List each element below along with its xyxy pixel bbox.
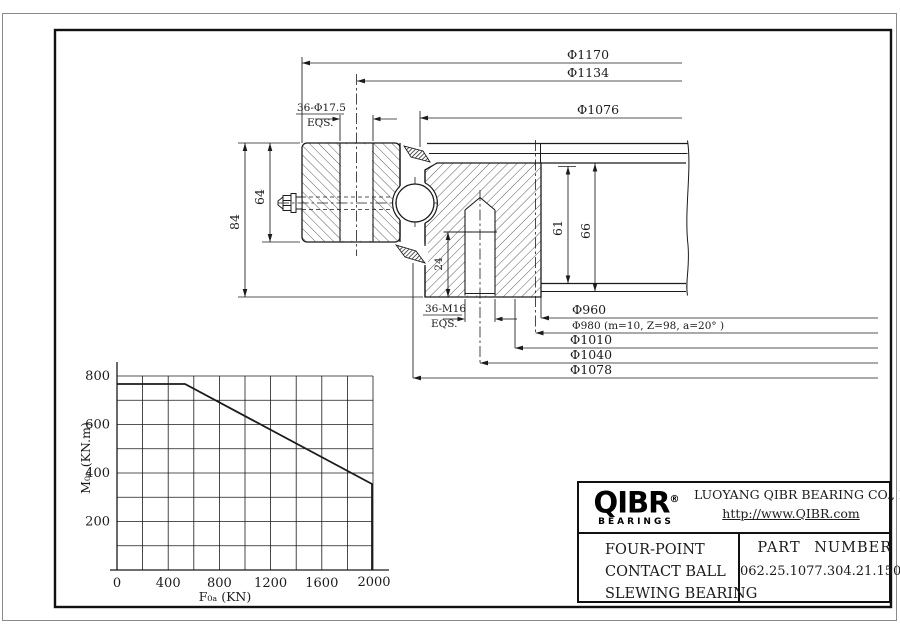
xtick-400: 400 xyxy=(156,576,181,591)
dim-thread-depth: 24 xyxy=(433,257,445,271)
title-block-header-row: QIBR® BEARINGS LUOYANG QIBR BEARING CO.,… xyxy=(579,483,889,534)
part-number-cell: PART NUMBER 062.25.1077.304.21.1504 xyxy=(740,534,900,601)
drawing-sheet: Φ1170 Φ1134 Φ1076 36-Φ17.5 EQS. 36-M16 E… xyxy=(0,0,900,636)
company-info: LUOYANG QIBR BEARING CO., LTD http://www… xyxy=(694,487,888,521)
dim-bolt-circle-outer: Φ1134 xyxy=(567,65,609,80)
ytick-800: 800 xyxy=(85,369,110,384)
xtick-2000: 2000 xyxy=(357,575,390,590)
dim-inner-bolt-holes: 36-M16 xyxy=(425,303,466,315)
dim-od: Φ1170 xyxy=(567,47,609,62)
dim-gear-pitch: Φ980 (m=10, Z=98, a=20° ) xyxy=(572,320,724,332)
dim-gear-tip: Φ960 xyxy=(572,302,606,317)
xtick-1600: 1600 xyxy=(305,576,338,591)
product-line-2: CONTACT BALL xyxy=(605,561,738,583)
company-website: http://www.QIBR.com xyxy=(694,506,888,521)
dim-inner-ring-height: 66 xyxy=(578,223,593,239)
dim-gear-root: Φ1010 xyxy=(570,332,612,347)
product-type: FOUR-POINT CONTACT BALL SLEWING BEARING xyxy=(579,534,740,601)
dim-inner-bolt-note: EQS. xyxy=(431,318,457,330)
dim-total-height: 84 xyxy=(227,214,242,230)
xtick-0: 0 xyxy=(113,576,121,591)
bearing-ball xyxy=(396,184,434,222)
ytick-200: 200 xyxy=(85,515,110,530)
part-number-label: PART NUMBER xyxy=(740,540,900,556)
dim-bolt-circle-inner: Φ1040 xyxy=(570,347,612,362)
xtick-1200: 1200 xyxy=(254,576,287,591)
company-name: LUOYANG QIBR BEARING CO., LTD xyxy=(694,487,888,502)
logo-subtext: BEARINGS xyxy=(586,517,686,527)
dim-outer-ring-id: Φ1076 xyxy=(577,102,619,117)
dim-gear-height: 61 xyxy=(550,220,565,236)
registered-mark-icon: ® xyxy=(669,494,678,505)
dim-outer-ring-height: 64 xyxy=(252,189,267,205)
dim-inner-ring-od: Φ1078 xyxy=(570,362,612,377)
company-logo: QIBR® BEARINGS xyxy=(586,486,686,527)
product-line-3: SLEWING BEARING xyxy=(605,583,738,605)
logo-text: QIBR xyxy=(594,486,670,520)
product-line-1: FOUR-POINT xyxy=(605,539,738,561)
dim-outer-bolt-note: EQS. xyxy=(307,117,333,129)
title-block: QIBR® BEARINGS LUOYANG QIBR BEARING CO.,… xyxy=(577,481,891,603)
title-block-bottom-row: FOUR-POINT CONTACT BALL SLEWING BEARING … xyxy=(579,534,889,601)
dim-outer-bolt-holes: 36-Φ17.5 xyxy=(297,102,346,114)
y-axis-title: M₀ₐ (KN.m) xyxy=(78,422,93,494)
part-number-value: 062.25.1077.304.21.1504 xyxy=(740,564,900,579)
x-axis-title: F₀ₐ (KN) xyxy=(199,589,252,604)
